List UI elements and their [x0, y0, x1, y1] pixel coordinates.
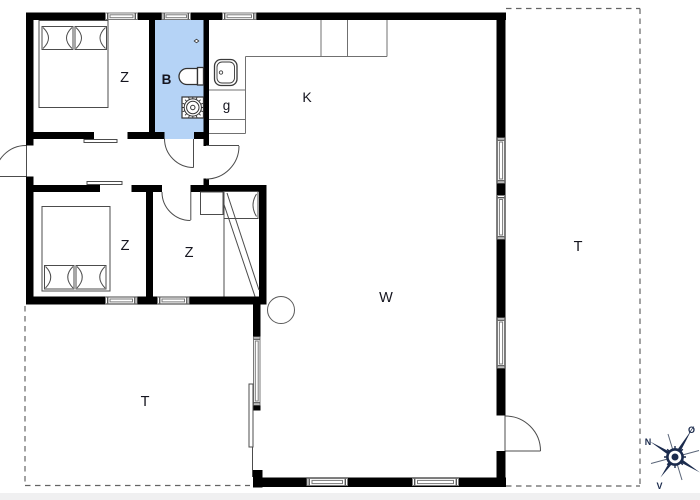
- svg-text:Ø: Ø: [688, 425, 695, 435]
- svg-text:T: T: [574, 239, 583, 255]
- svg-text:Z: Z: [185, 245, 194, 261]
- svg-text:Z: Z: [120, 70, 129, 86]
- svg-text:T: T: [141, 394, 150, 410]
- svg-text:W: W: [379, 290, 393, 306]
- svg-text:N: N: [645, 437, 652, 447]
- svg-text:g: g: [223, 98, 231, 113]
- svg-text:Z: Z: [121, 238, 130, 254]
- svg-text:K: K: [302, 89, 312, 105]
- svg-text:B: B: [162, 72, 172, 87]
- svg-text:V: V: [656, 481, 662, 491]
